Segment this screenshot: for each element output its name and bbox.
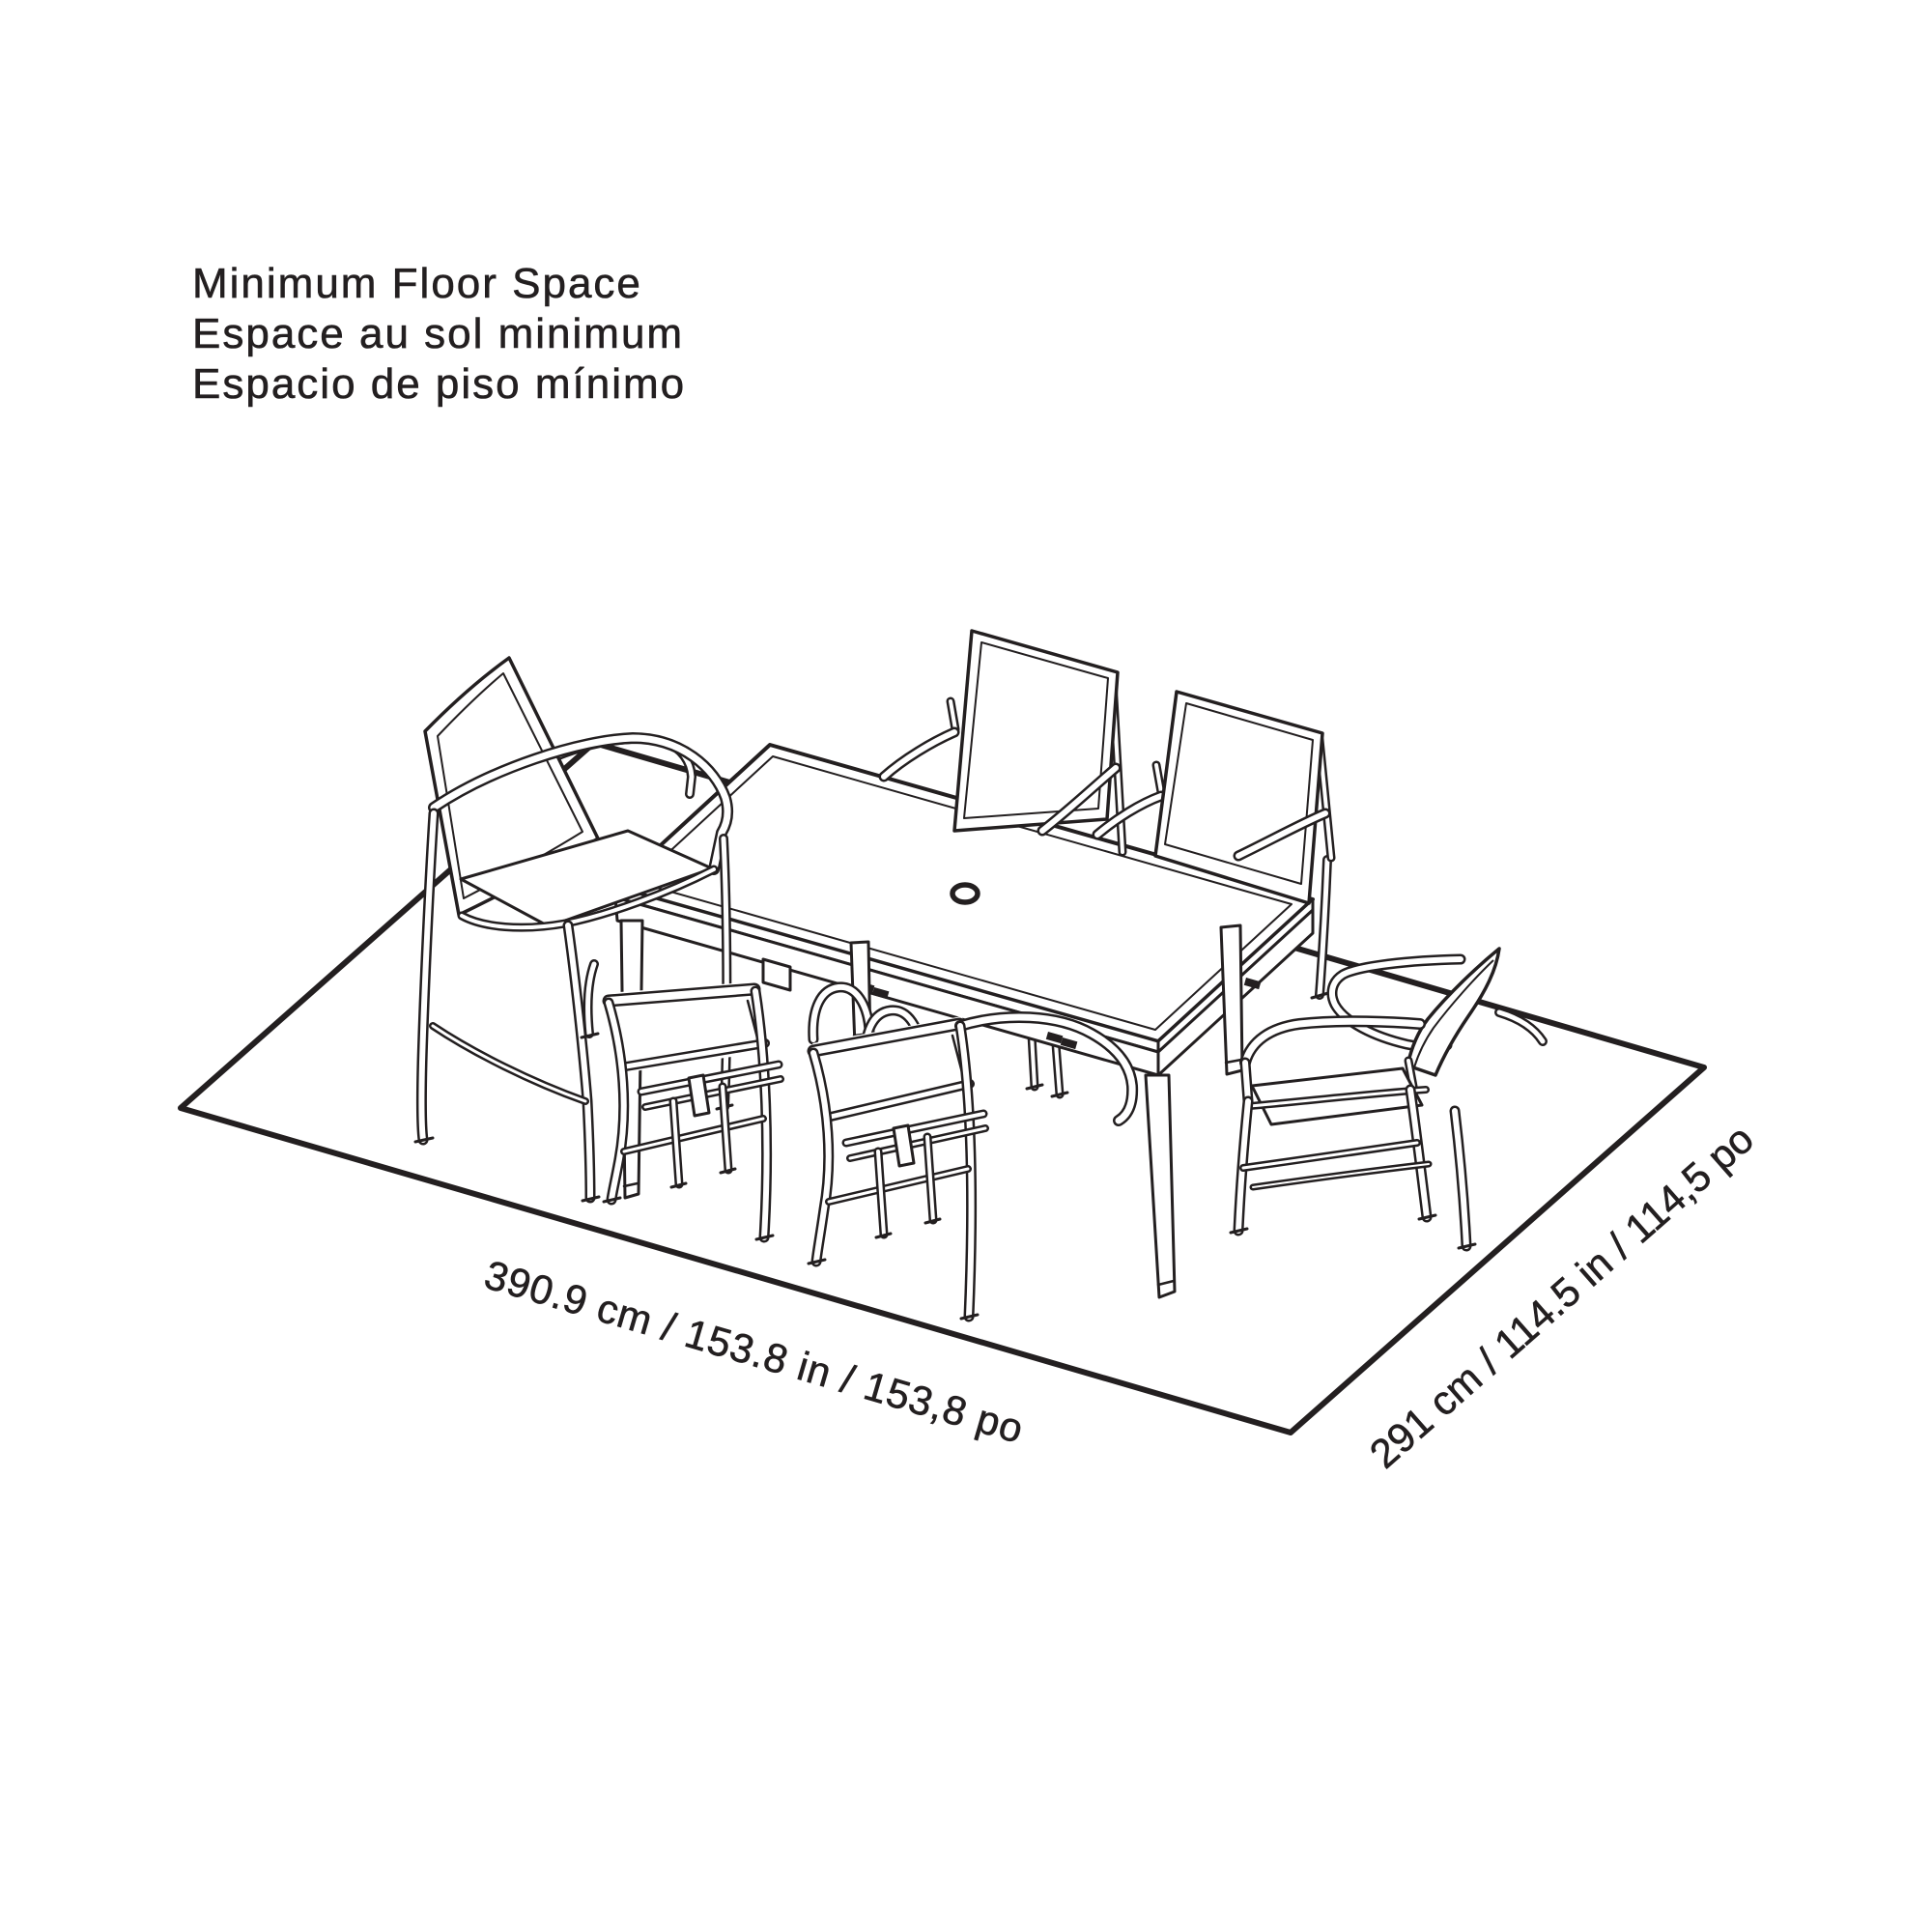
svg-text:390.9 cm / 153.8 in / 153,8 po: 390.9 cm / 153.8 in / 153,8 po (479, 1252, 1028, 1452)
